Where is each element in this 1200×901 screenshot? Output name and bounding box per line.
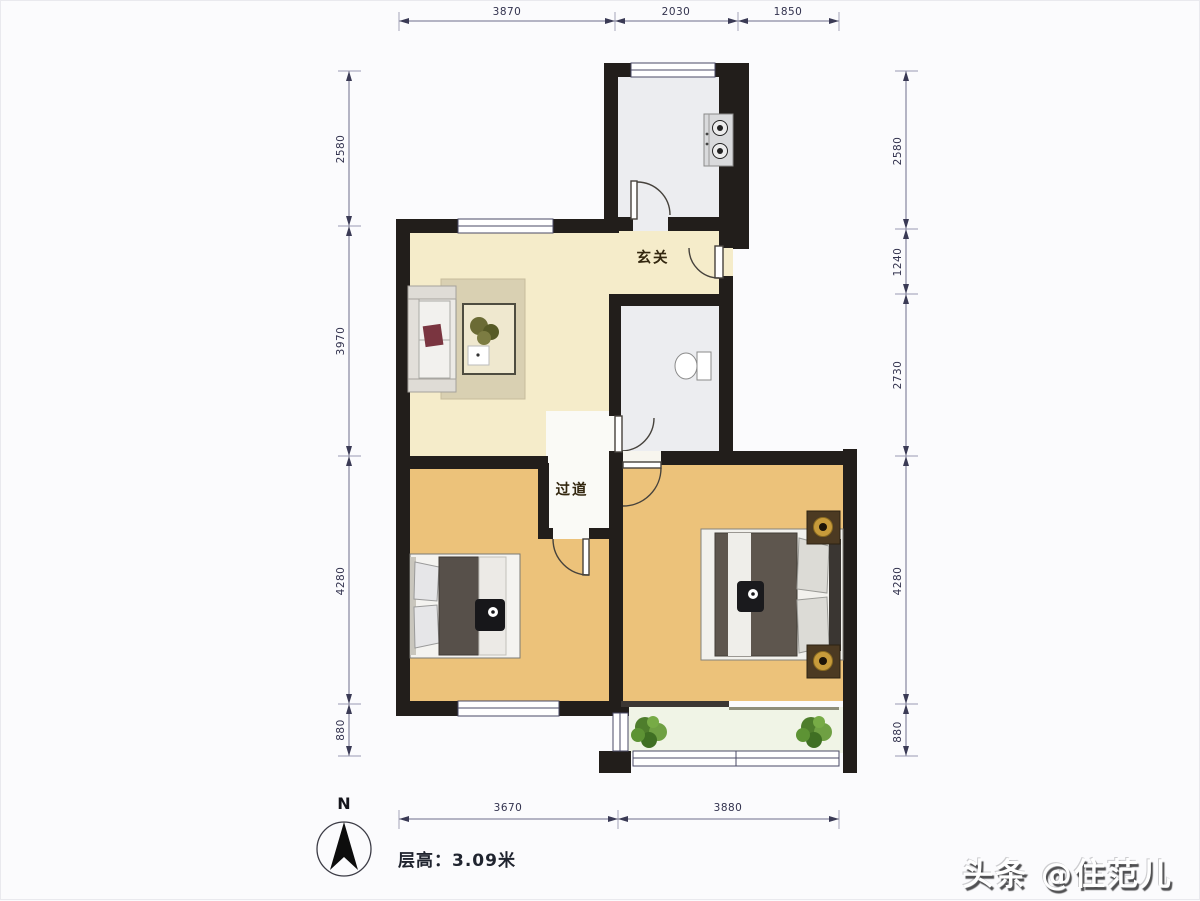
stove-icon (704, 114, 733, 166)
watermark: 头条 @住范儿 (962, 849, 1173, 894)
coffee-table (463, 304, 515, 374)
corridor-floor (546, 411, 609, 531)
dim-right-4: 4280 (892, 567, 904, 596)
north-label: N (337, 794, 350, 813)
dim-right-1: 2580 (892, 137, 904, 166)
balcony-side-window (613, 713, 628, 751)
entrance-hall-label: 玄关 (637, 247, 670, 268)
dim-left-1: 2580 (335, 135, 347, 164)
dim-bottom-2: 3880 (714, 802, 743, 814)
north-arrow-icon (330, 822, 358, 870)
compass-icon (317, 822, 371, 876)
dim-top-2: 2030 (662, 6, 691, 18)
living-room-window (458, 219, 553, 233)
left-bed (410, 554, 520, 658)
dim-right-3: 2730 (892, 361, 904, 390)
corridor-label: 过道 (556, 479, 589, 500)
nightstand-bottom (807, 645, 840, 678)
dim-left-2: 3970 (335, 327, 347, 356)
sofa (408, 286, 456, 392)
dim-right-2: 1240 (892, 248, 904, 277)
dim-left-4: 880 (335, 719, 347, 741)
toilet-icon (675, 352, 711, 380)
right-bed (701, 529, 843, 660)
nightstand-top (807, 511, 840, 544)
dim-top-3: 1850 (774, 6, 803, 18)
kitchen-window (631, 63, 715, 77)
floor-plan-image: 3870 2030 1850 3670 3880 2580 3970 4280 … (0, 0, 1200, 900)
dim-bottom-1: 3670 (494, 802, 523, 814)
floor-height-label: 层高：3.09米 (398, 846, 516, 871)
floor-plan-drawing (1, 1, 1200, 901)
dim-left-3: 4280 (335, 567, 347, 596)
dim-right-5: 880 (892, 721, 904, 743)
balcony-window (633, 751, 839, 766)
left-bedroom-window (458, 701, 559, 716)
dim-top-1: 3870 (493, 6, 522, 18)
